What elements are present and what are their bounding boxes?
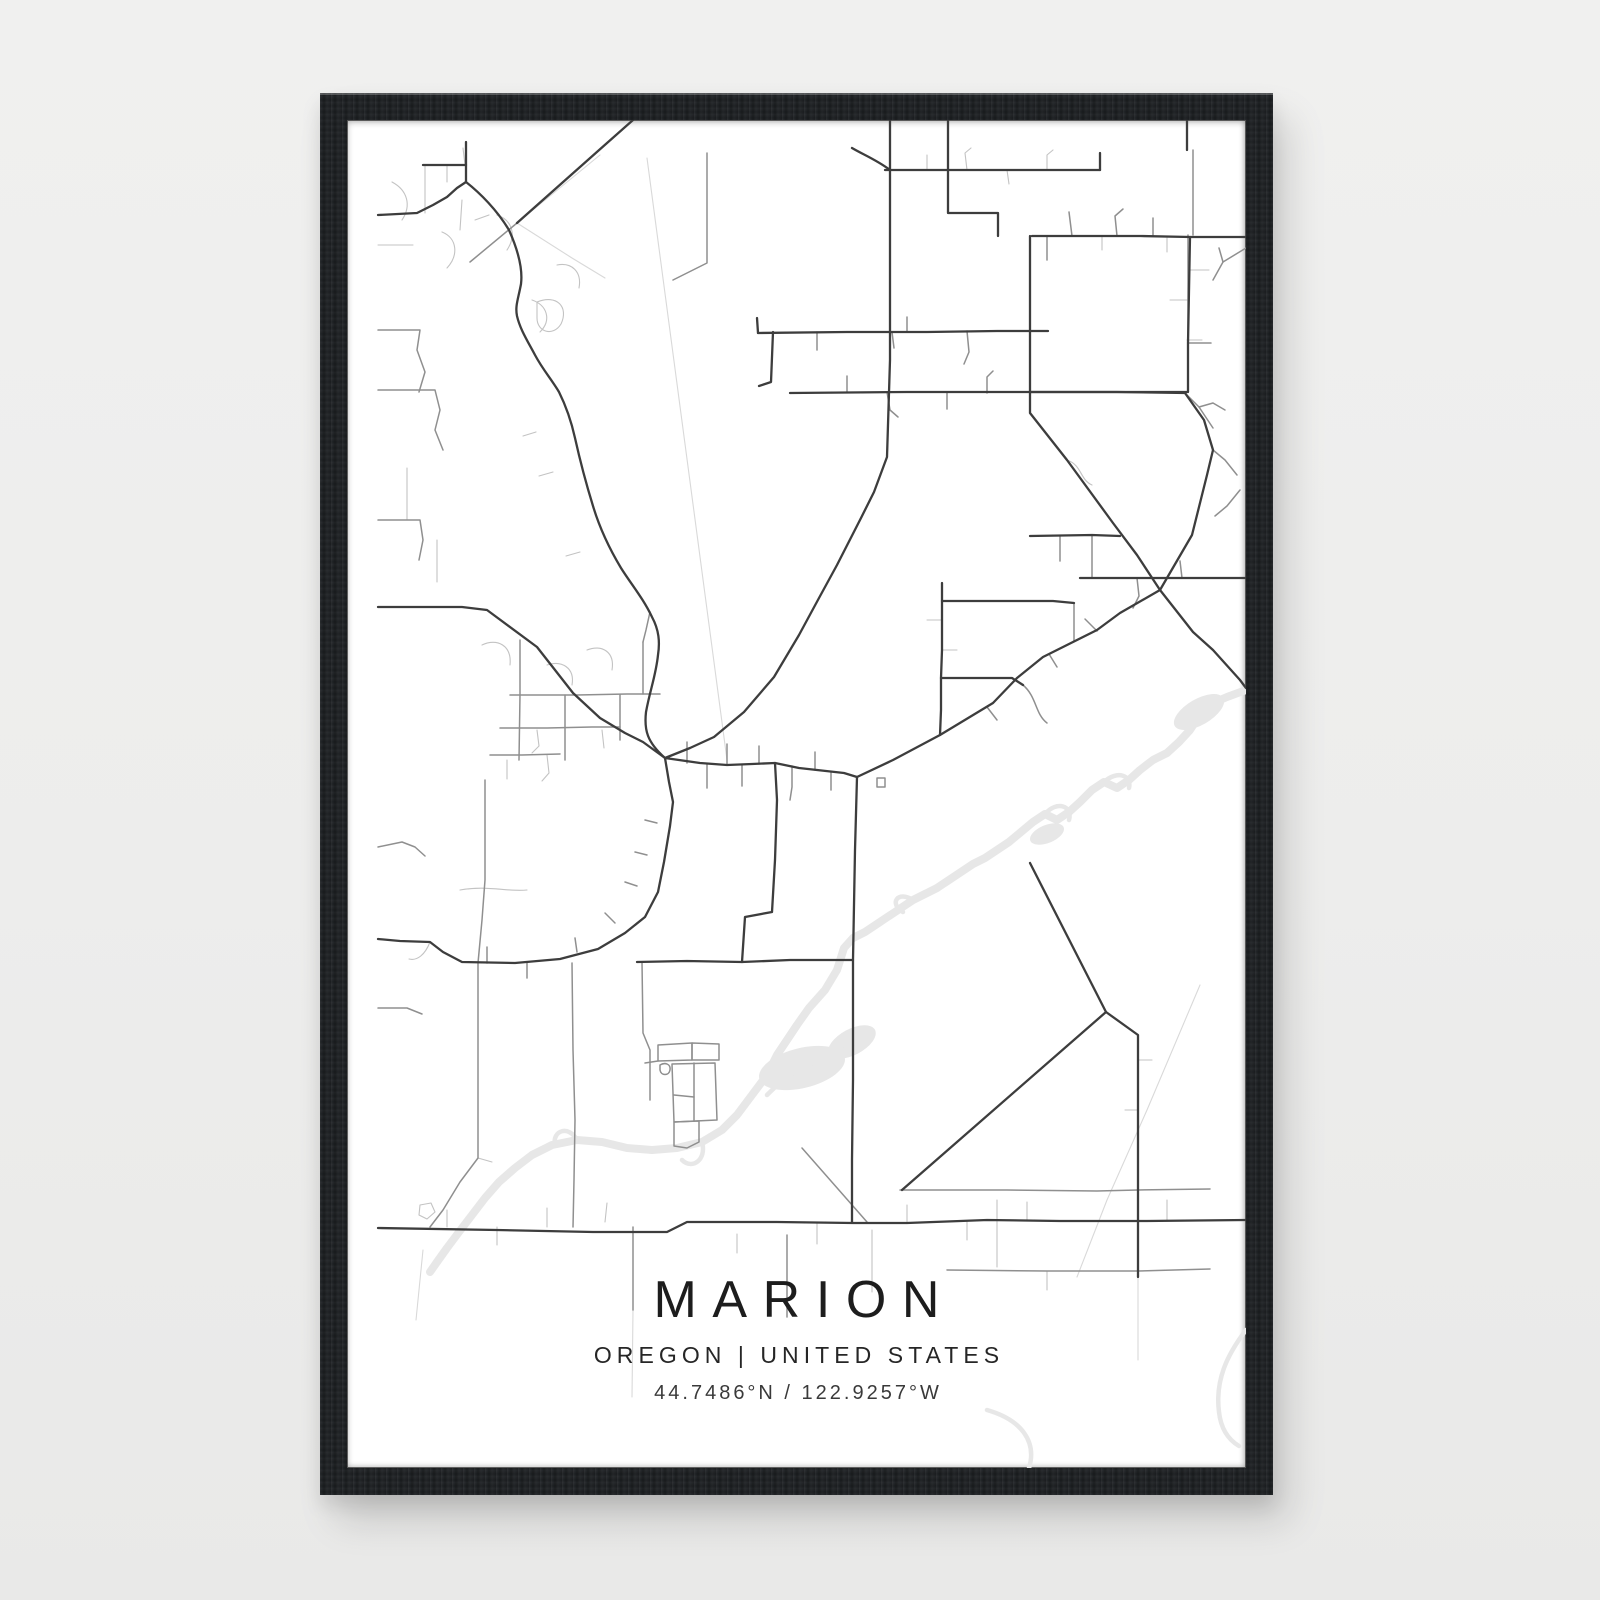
layer-road-main — [378, 120, 1246, 1277]
poster-coordinates: 44.7486°N / 122.9257°W — [347, 1381, 1246, 1405]
layer-water-blobs — [754, 687, 1229, 1098]
poster-frame: MARION OREGON | UNITED STATES 44.7486°N … — [320, 93, 1273, 1495]
poster-caption: MARION OREGON | UNITED STATES 44.7486°N … — [347, 1272, 1246, 1405]
poster-paper: MARION OREGON | UNITED STATES 44.7486°N … — [347, 120, 1246, 1468]
poster-region-line: OREGON | UNITED STATES — [347, 1342, 1246, 1368]
layer-road-minor — [378, 148, 1209, 1292]
street-map — [347, 120, 1246, 1468]
layer-road-mid — [378, 150, 1246, 1317]
poster-title: MARION — [347, 1272, 1246, 1328]
product-photo-scene: MARION OREGON | UNITED STATES 44.7486°N … — [0, 0, 1600, 1600]
layer-road-faint — [416, 155, 1200, 1397]
